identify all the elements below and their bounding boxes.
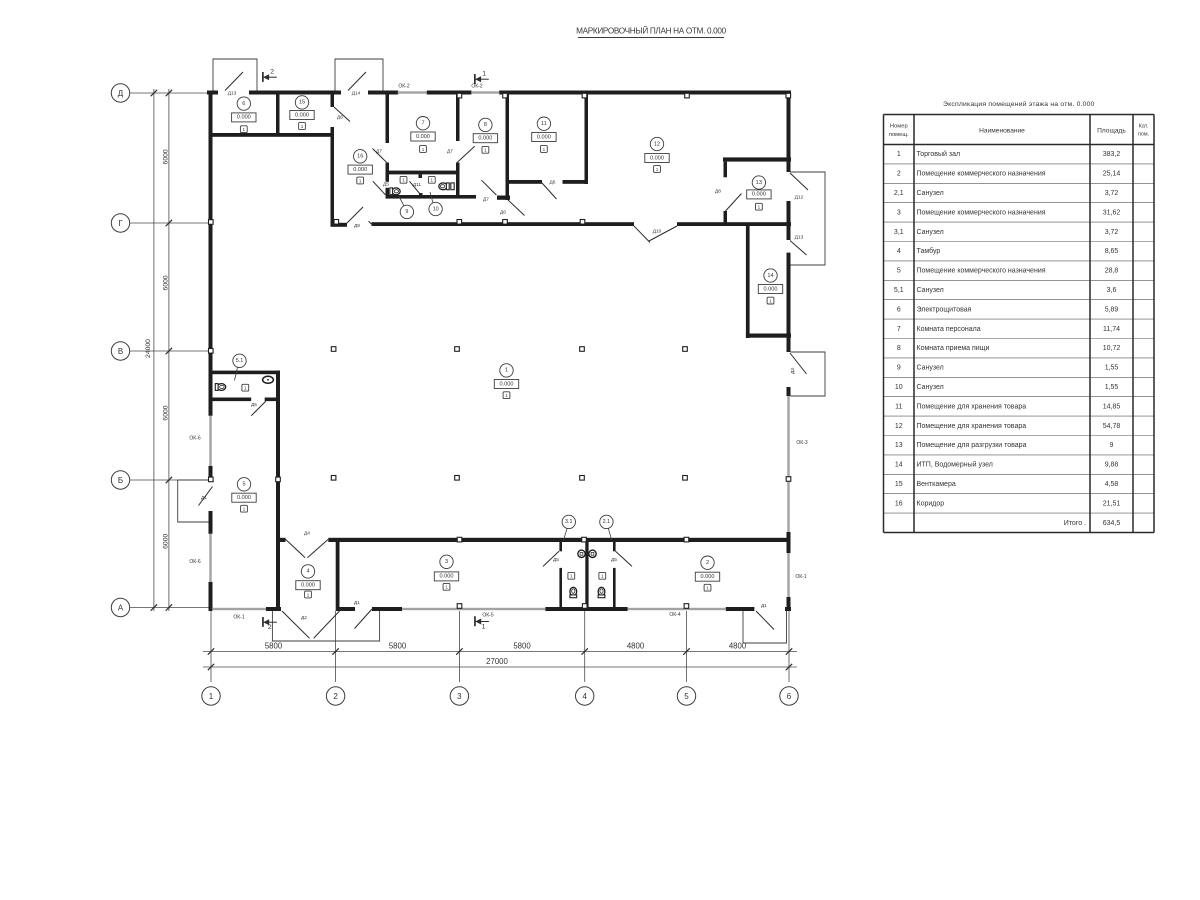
svg-text:5,89: 5,89: [1105, 306, 1119, 313]
svg-text:0.000: 0.000: [701, 574, 715, 580]
svg-text:8: 8: [484, 122, 487, 128]
svg-text:1: 1: [243, 507, 246, 512]
svg-text:Площадь: Площадь: [1097, 128, 1126, 135]
svg-text:0.000: 0.000: [764, 286, 778, 292]
svg-text:0.000: 0.000: [237, 495, 251, 501]
svg-text:4: 4: [582, 692, 587, 701]
svg-text:Д5: Д5: [553, 557, 559, 563]
svg-text:0.000: 0.000: [500, 381, 514, 387]
svg-text:ОК-2: ОК-2: [471, 84, 482, 90]
svg-text:Санузел: Санузел: [917, 229, 944, 236]
svg-text:24000: 24000: [145, 339, 152, 358]
svg-text:Д5: Д5: [383, 181, 389, 187]
svg-text:5800: 5800: [389, 642, 407, 651]
svg-text:Помещение коммерческого назнач: Помещение коммерческого назначения: [917, 209, 1046, 216]
svg-text:0.000: 0.000: [752, 192, 766, 198]
svg-text:27000: 27000: [486, 657, 508, 666]
svg-text:1: 1: [244, 386, 247, 391]
svg-text:1: 1: [505, 393, 508, 398]
svg-text:10: 10: [433, 206, 439, 212]
svg-text:Г: Г: [118, 219, 123, 228]
svg-text:1: 1: [484, 148, 487, 153]
svg-text:2: 2: [268, 624, 272, 631]
svg-text:9: 9: [1110, 442, 1114, 449]
svg-text:12: 12: [654, 141, 660, 147]
svg-text:5800: 5800: [513, 642, 531, 651]
svg-text:6: 6: [242, 101, 245, 107]
svg-text:2: 2: [333, 692, 338, 701]
svg-text:5,1: 5,1: [894, 287, 904, 294]
svg-text:3,72: 3,72: [1105, 190, 1119, 197]
svg-text:1: 1: [422, 147, 425, 152]
svg-text:1: 1: [307, 592, 310, 597]
svg-text:1: 1: [543, 147, 546, 152]
svg-text:Б: Б: [118, 476, 123, 485]
svg-text:3: 3: [445, 559, 448, 565]
svg-text:Д: Д: [118, 89, 124, 98]
svg-text:6: 6: [897, 306, 901, 313]
svg-text:Д13: Д13: [228, 91, 237, 97]
svg-text:Д6: Д6: [337, 115, 343, 121]
svg-text:4: 4: [306, 569, 309, 575]
svg-text:9: 9: [405, 209, 408, 215]
svg-text:3,72: 3,72: [1105, 229, 1119, 236]
svg-text:7: 7: [897, 326, 901, 333]
svg-text:Помещение коммерческого назнач: Помещение коммерческого назначения: [917, 171, 1046, 178]
svg-text:Помещение для разгрузки товара: Помещение для разгрузки товара: [917, 442, 1027, 449]
svg-text:Д2: Д2: [301, 615, 307, 621]
svg-text:54,78: 54,78: [1103, 423, 1121, 430]
svg-text:Д1: Д1: [761, 603, 767, 609]
svg-text:1: 1: [706, 586, 709, 591]
svg-text:13: 13: [756, 180, 762, 186]
svg-text:0.000: 0.000: [237, 115, 251, 121]
svg-text:0.000: 0.000: [440, 574, 454, 580]
svg-text:Электрощитовая: Электрощитовая: [917, 306, 972, 313]
svg-text:5: 5: [242, 482, 245, 488]
svg-text:Санузел: Санузел: [917, 384, 944, 391]
svg-text:21,51: 21,51: [1103, 500, 1121, 507]
svg-text:ОК-1: ОК-1: [795, 574, 806, 580]
svg-text:Тамбур: Тамбур: [917, 247, 941, 255]
svg-text:10: 10: [895, 384, 903, 391]
svg-text:МАРКИРОВОЧНЫЙ ПЛАН НА ОТМ. 0.0: МАРКИРОВОЧНЫЙ ПЛАН НА ОТМ. 0.000: [576, 25, 727, 36]
svg-text:14: 14: [767, 273, 773, 279]
svg-text:пом.: пом.: [1138, 132, 1149, 138]
svg-text:1: 1: [758, 205, 761, 210]
svg-text:5: 5: [897, 268, 901, 275]
svg-text:Номер: Номер: [890, 124, 908, 130]
svg-text:14,85: 14,85: [1103, 403, 1121, 410]
svg-text:14: 14: [895, 462, 903, 469]
svg-text:Кат.: Кат.: [1139, 124, 1148, 130]
svg-text:Помещение коммерческого назнач: Помещение коммерческого назначения: [917, 268, 1046, 275]
svg-text:ОК-2: ОК-2: [398, 84, 409, 90]
svg-text:А: А: [118, 603, 124, 612]
svg-text:6: 6: [787, 692, 792, 701]
svg-text:5800: 5800: [265, 642, 283, 651]
svg-text:0.000: 0.000: [650, 155, 664, 161]
svg-text:1: 1: [431, 178, 434, 183]
svg-text:16: 16: [357, 154, 363, 160]
svg-text:9: 9: [897, 365, 901, 372]
svg-text:Коридор: Коридор: [917, 500, 945, 507]
svg-text:1: 1: [656, 167, 659, 172]
svg-text:ОК-3: ОК-3: [796, 440, 807, 446]
svg-text:1: 1: [301, 124, 304, 129]
svg-text:Санузел: Санузел: [917, 190, 944, 197]
svg-text:6000: 6000: [162, 534, 169, 549]
svg-text:1: 1: [482, 71, 486, 78]
svg-text:1: 1: [482, 623, 486, 630]
svg-text:3,1: 3,1: [894, 229, 904, 236]
svg-text:ОК-6: ОК-6: [189, 436, 200, 442]
svg-text:8,65: 8,65: [1105, 248, 1119, 255]
svg-text:3: 3: [897, 209, 901, 216]
svg-text:ОК-4: ОК-4: [669, 612, 680, 618]
svg-text:11,74: 11,74: [1103, 326, 1120, 333]
svg-text:Д8: Д8: [715, 189, 721, 195]
svg-text:3: 3: [457, 692, 462, 701]
svg-text:1: 1: [769, 298, 772, 303]
svg-text:Торговый зал: Торговый зал: [917, 150, 961, 158]
svg-text:Помещение для хранения товара: Помещение для хранения товара: [917, 403, 1027, 410]
svg-text:1: 1: [505, 368, 508, 374]
svg-text:Д7: Д7: [447, 149, 453, 155]
svg-text:1: 1: [897, 151, 901, 158]
svg-text:Итого .: Итого .: [1064, 520, 1086, 527]
svg-text:16: 16: [895, 500, 903, 507]
svg-text:Венткамера: Венткамера: [917, 481, 956, 488]
svg-text:2: 2: [897, 171, 901, 178]
svg-text:Д4: Д4: [304, 531, 310, 537]
svg-text:634,5: 634,5: [1103, 520, 1121, 527]
svg-text:8: 8: [897, 345, 901, 352]
svg-text:12: 12: [895, 423, 903, 430]
svg-text:5.1: 5.1: [236, 358, 244, 364]
svg-text:0.000: 0.000: [537, 134, 551, 140]
svg-text:ИТП, Водомерный узел: ИТП, Водомерный узел: [917, 461, 993, 469]
svg-text:6000: 6000: [162, 405, 169, 420]
svg-text:Д1: Д1: [354, 600, 360, 606]
svg-text:В: В: [118, 347, 123, 356]
svg-text:Д12: Д12: [795, 195, 804, 201]
svg-text:13: 13: [895, 442, 903, 449]
svg-text:Д6: Д6: [550, 179, 556, 185]
svg-text:0.000: 0.000: [416, 134, 430, 140]
svg-text:1: 1: [445, 585, 448, 590]
svg-text:15: 15: [299, 100, 305, 106]
svg-text:ОК-6: ОК-6: [189, 559, 200, 565]
svg-text:6000: 6000: [162, 149, 169, 164]
svg-text:383,2: 383,2: [1103, 151, 1121, 158]
svg-text:1,55: 1,55: [1105, 384, 1119, 391]
svg-text:2: 2: [270, 69, 274, 76]
svg-text:0.000: 0.000: [353, 167, 367, 173]
svg-text:1,55: 1,55: [1105, 365, 1119, 372]
svg-text:1: 1: [570, 574, 573, 579]
svg-text:Экспликация помещений этажа на: Экспликация помещений этажа на отм. 0.00…: [943, 100, 1095, 108]
svg-text:1: 1: [243, 127, 246, 132]
svg-text:ОК-5: ОК-5: [482, 613, 493, 619]
svg-text:2.1: 2.1: [603, 519, 611, 525]
svg-text:Наименование: Наименование: [979, 128, 1025, 135]
svg-text:Санузел: Санузел: [917, 365, 944, 372]
svg-text:Д10: Д10: [653, 229, 662, 235]
svg-text:2: 2: [706, 560, 709, 566]
svg-text:4,58: 4,58: [1105, 481, 1119, 488]
svg-text:3.1: 3.1: [565, 519, 573, 525]
svg-text:6000: 6000: [162, 275, 169, 290]
svg-text:0.000: 0.000: [295, 112, 309, 118]
svg-text:4: 4: [897, 248, 901, 255]
svg-text:Комната персонала: Комната персонала: [917, 326, 981, 333]
svg-text:2,1: 2,1: [894, 190, 904, 197]
svg-text:5: 5: [684, 692, 689, 701]
svg-text:Санузел: Санузел: [917, 287, 944, 294]
svg-text:15: 15: [895, 481, 903, 488]
svg-text:3,6: 3,6: [1107, 287, 1117, 294]
svg-text:0.000: 0.000: [301, 583, 315, 589]
svg-text:Д14: Д14: [352, 91, 361, 97]
svg-text:Д3: Д3: [790, 368, 796, 374]
svg-text:Помещение для хранения товара: Помещение для хранения товара: [917, 423, 1027, 430]
svg-text:7: 7: [421, 121, 424, 127]
svg-text:28,8: 28,8: [1105, 268, 1119, 275]
svg-text:Д11: Д11: [413, 182, 422, 188]
svg-text:Комната приема пищи: Комната приема пищи: [917, 345, 990, 352]
svg-text:Д9: Д9: [354, 223, 360, 229]
svg-text:11: 11: [895, 403, 902, 410]
svg-text:9,88: 9,88: [1105, 462, 1119, 469]
svg-text:Д6: Д6: [500, 210, 506, 216]
svg-text:1: 1: [601, 574, 604, 579]
svg-text:Д13: Д13: [795, 235, 804, 241]
svg-text:10,72: 10,72: [1103, 345, 1121, 352]
svg-text:Д7: Д7: [483, 196, 489, 202]
svg-text:Д1: Д1: [201, 495, 207, 501]
svg-text:Д5: Д5: [251, 402, 257, 408]
svg-text:1: 1: [209, 692, 214, 701]
svg-text:0.000: 0.000: [478, 136, 492, 142]
svg-text:1: 1: [359, 178, 362, 183]
svg-text:Д5: Д5: [611, 557, 617, 563]
svg-text:ОК-1: ОК-1: [233, 615, 244, 621]
svg-text:31,62: 31,62: [1103, 209, 1121, 216]
svg-text:11: 11: [541, 121, 547, 127]
svg-text:4800: 4800: [627, 642, 645, 651]
svg-text:25,14: 25,14: [1103, 171, 1121, 178]
svg-text:1: 1: [402, 178, 405, 183]
svg-text:Д7: Д7: [376, 149, 382, 155]
svg-text:помещ.: помещ.: [889, 132, 909, 138]
